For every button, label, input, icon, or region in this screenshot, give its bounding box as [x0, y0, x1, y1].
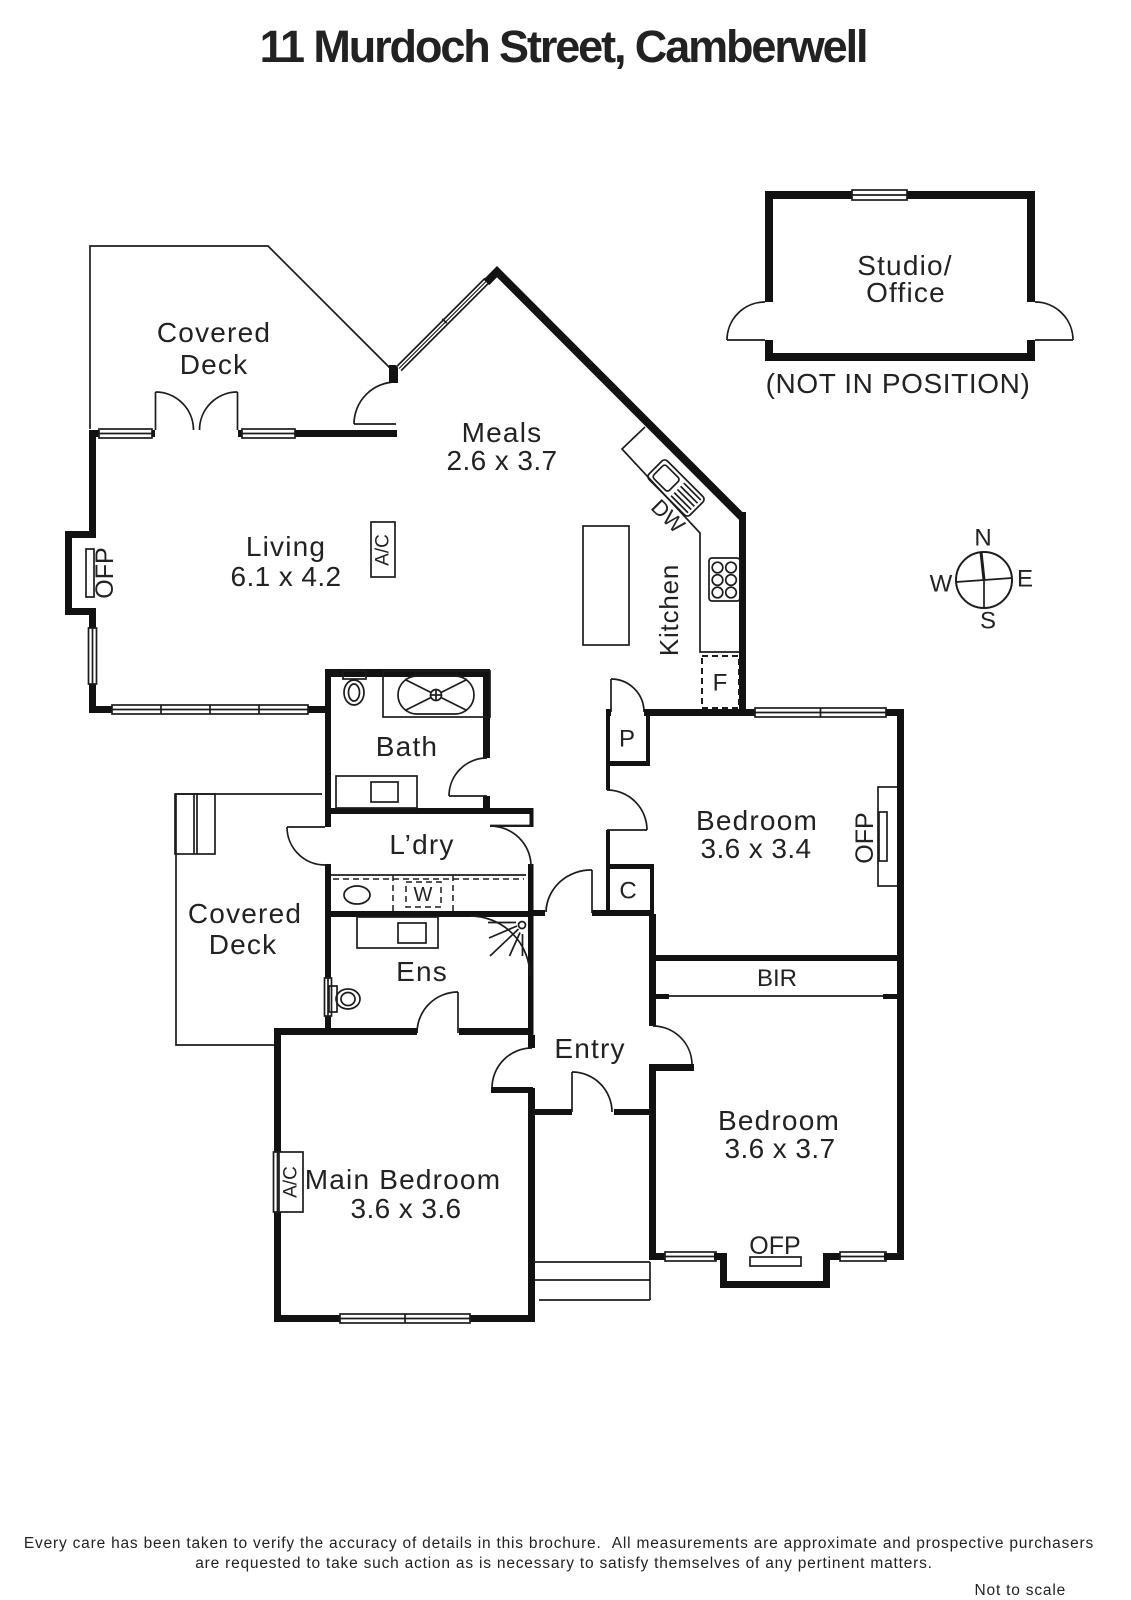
svg-text:Covered: Covered: [188, 898, 302, 929]
svg-text:W: W: [930, 571, 953, 598]
svg-text:Not to scale: Not to scale: [975, 1582, 1066, 1599]
svg-text:OFP: OFP: [851, 812, 879, 863]
svg-text:Living: Living: [246, 531, 326, 562]
svg-text:Bedroom: Bedroom: [718, 1105, 840, 1136]
svg-text:E: E: [1017, 566, 1033, 593]
svg-text:2.6 x 3.7: 2.6 x 3.7: [446, 445, 557, 476]
svg-text:W: W: [414, 884, 433, 906]
svg-text:Main Bedroom: Main Bedroom: [305, 1164, 501, 1195]
svg-text:L’dry: L’dry: [389, 829, 454, 860]
svg-text:A/C: A/C: [373, 534, 394, 566]
svg-text:11 Murdoch Street, Camberwell: 11 Murdoch Street, Camberwell: [260, 21, 867, 72]
svg-text:3.6 x 3.7: 3.6 x 3.7: [724, 1133, 835, 1164]
svg-text:BIR: BIR: [757, 965, 797, 992]
svg-text:Every care has been taken to v: Every care has been taken to verify the …: [24, 1535, 1094, 1552]
svg-text:Meals: Meals: [462, 417, 543, 448]
svg-text:A/C: A/C: [281, 1166, 302, 1198]
svg-text:OFP: OFP: [749, 1232, 800, 1260]
svg-text:are requested to take such act: are requested to take such action as is …: [195, 1555, 933, 1572]
svg-text:OFP: OFP: [91, 547, 119, 598]
svg-text:Ens: Ens: [396, 956, 448, 987]
svg-text:S: S: [980, 608, 996, 635]
svg-text:C: C: [619, 878, 636, 905]
svg-text:(NOT IN POSITION): (NOT IN POSITION): [766, 368, 1031, 399]
svg-text:Deck: Deck: [180, 349, 249, 380]
svg-text:Entry: Entry: [554, 1033, 625, 1064]
svg-text:N: N: [974, 525, 991, 552]
svg-text:3.6 x 3.6: 3.6 x 3.6: [350, 1193, 461, 1224]
svg-text:6.1 x 4.2: 6.1 x 4.2: [230, 561, 341, 592]
svg-text:F: F: [713, 670, 728, 697]
svg-text:Bedroom: Bedroom: [696, 805, 818, 836]
svg-text:Kitchen: Kitchen: [654, 564, 684, 656]
svg-text:Covered: Covered: [157, 317, 271, 348]
svg-text:Bath: Bath: [376, 731, 438, 762]
svg-text:Deck: Deck: [209, 929, 278, 960]
svg-text:P: P: [619, 726, 635, 753]
svg-text:3.6 x 3.4: 3.6 x 3.4: [700, 833, 811, 864]
svg-text:Office: Office: [866, 277, 946, 308]
